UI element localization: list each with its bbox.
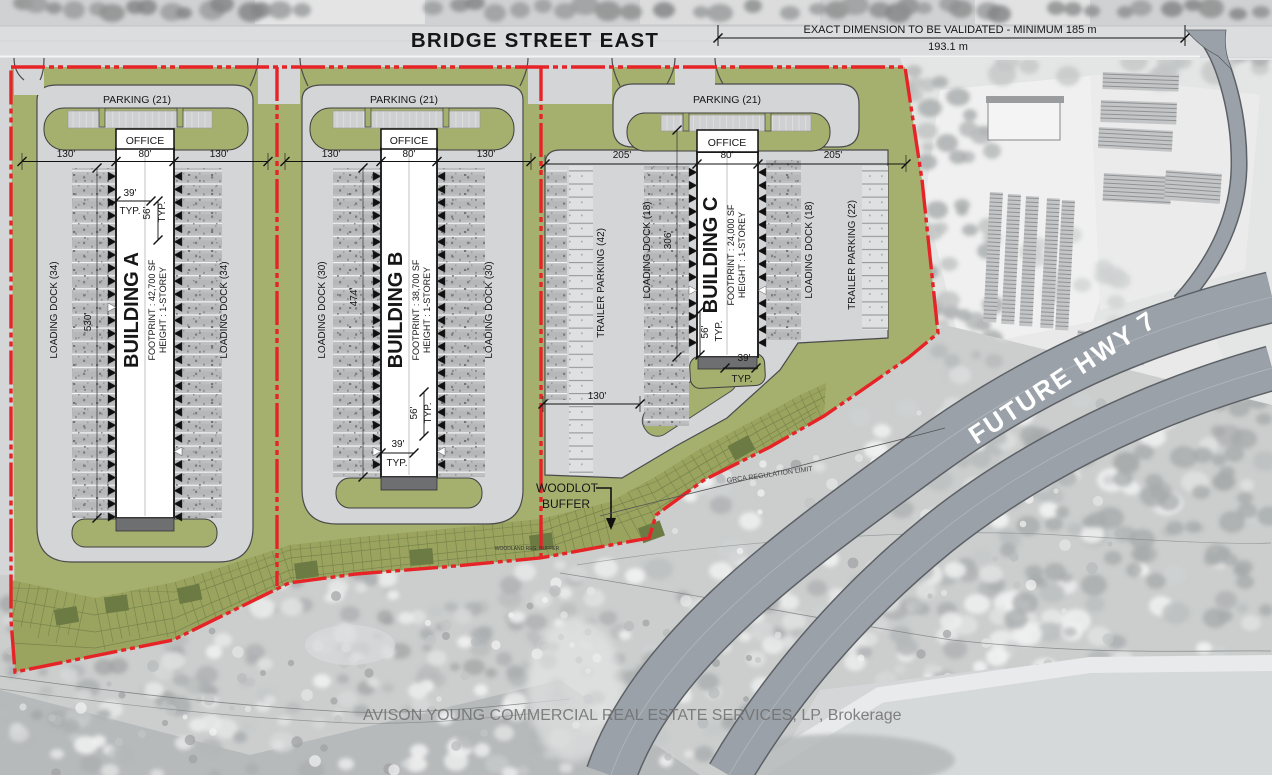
svg-text:BUFFER: BUFFER: [542, 497, 590, 511]
svg-text:TRAILER PARKING (22): TRAILER PARKING (22): [847, 200, 858, 310]
svg-text:130': 130': [57, 149, 76, 160]
svg-text:80': 80': [720, 150, 733, 161]
svg-text:130': 130': [477, 149, 496, 160]
svg-text:BRIDGE STREET EAST: BRIDGE STREET EAST: [411, 29, 659, 52]
svg-text:TYP.: TYP.: [157, 202, 168, 223]
svg-text:WOODLOT: WOODLOT: [536, 481, 599, 495]
svg-text:BUILDING A: BUILDING A: [121, 252, 143, 368]
svg-text:HEIGHT : 1-STOREY: HEIGHT : 1-STOREY: [422, 267, 432, 353]
svg-text:OFFICE: OFFICE: [390, 135, 429, 147]
svg-text:80': 80': [402, 149, 415, 160]
svg-text:LOADING DOCK (34): LOADING DOCK (34): [219, 261, 230, 358]
svg-text:FOOTPRINT : 42,700 SF: FOOTPRINT : 42,700 SF: [147, 259, 157, 360]
svg-text:56': 56': [142, 206, 153, 219]
svg-text:BUILDING B: BUILDING B: [385, 252, 407, 369]
svg-text:306': 306': [663, 231, 674, 250]
svg-text:LOADING DOCK (30): LOADING DOCK (30): [317, 261, 328, 358]
svg-text:TYP.: TYP.: [423, 403, 434, 424]
svg-text:193.1 m: 193.1 m: [928, 41, 968, 53]
svg-text:LOADING DOCK (30): LOADING DOCK (30): [484, 261, 495, 358]
svg-text:LOADING DOCK (18): LOADING DOCK (18): [804, 201, 815, 298]
svg-text:FOOTPRINT : 24,000 SF: FOOTPRINT : 24,000 SF: [726, 204, 736, 305]
svg-text:205': 205': [613, 150, 632, 161]
svg-text:56': 56': [700, 325, 711, 338]
svg-text:PARKING (21): PARKING (21): [103, 94, 171, 106]
svg-text:474': 474': [349, 288, 360, 307]
svg-text:WOODLAND REG. BUFFER: WOODLAND REG. BUFFER: [495, 546, 560, 552]
svg-text:130': 130': [210, 149, 229, 160]
svg-text:39': 39': [737, 353, 750, 364]
svg-text:FOOTPRINT : 38,700 SF: FOOTPRINT : 38,700 SF: [411, 259, 421, 360]
svg-text:PARKING (21): PARKING (21): [370, 94, 438, 106]
svg-text:EXACT DIMENSION TO BE VALIDATE: EXACT DIMENSION TO BE VALIDATED - MINIMU…: [804, 24, 1097, 36]
svg-text:TYP.: TYP.: [120, 206, 141, 217]
svg-text:BUILDING C: BUILDING C: [700, 197, 722, 314]
svg-text:LOADING DOCK (34): LOADING DOCK (34): [49, 261, 60, 358]
svg-text:HEIGHT : 1-STOREY: HEIGHT : 1-STOREY: [158, 267, 168, 353]
svg-text:TRAILER PARKING (42): TRAILER PARKING (42): [596, 228, 607, 338]
svg-text:OFFICE: OFFICE: [708, 137, 747, 149]
svg-text:LOADING DOCK (18): LOADING DOCK (18): [642, 201, 653, 298]
svg-text:AVISON YOUNG COMMERCIAL REAL E: AVISON YOUNG COMMERCIAL REAL ESTATE SERV…: [363, 707, 902, 724]
svg-text:130': 130': [588, 391, 607, 402]
svg-text:130': 130': [322, 149, 341, 160]
svg-text:OFFICE: OFFICE: [126, 135, 165, 147]
svg-text:39': 39': [391, 439, 404, 450]
svg-text:PARKING (21): PARKING (21): [693, 94, 761, 106]
svg-text:530': 530': [83, 313, 94, 332]
svg-text:TYP.: TYP.: [732, 374, 753, 385]
svg-text:56': 56': [409, 406, 420, 419]
svg-text:205': 205': [824, 150, 843, 161]
svg-text:HEIGHT : 1-STOREY: HEIGHT : 1-STOREY: [737, 212, 747, 298]
svg-text:80': 80': [138, 149, 151, 160]
svg-text:39': 39': [123, 188, 136, 199]
svg-text:TYP.: TYP.: [387, 458, 408, 469]
svg-text:TYP.: TYP.: [714, 321, 725, 342]
